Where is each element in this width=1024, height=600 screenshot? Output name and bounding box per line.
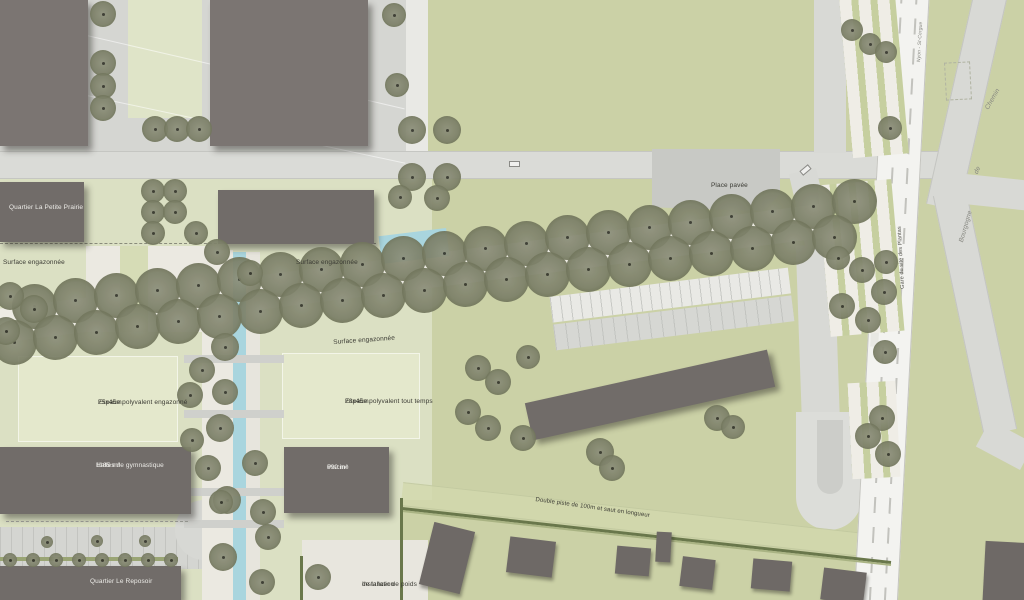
- label-text: Quartier Le Reposoir: [90, 577, 152, 587]
- building-halles-gymnastique: [0, 447, 191, 514]
- building-house: [982, 541, 1024, 600]
- tree-icon: [485, 369, 511, 395]
- building-house: [820, 567, 867, 600]
- tree-icon: [156, 299, 201, 344]
- car-icon: [509, 161, 520, 167]
- tree-icon: [72, 553, 86, 567]
- tree-icon: [849, 257, 875, 283]
- tree-icon: [443, 262, 488, 307]
- building-northwest-2: [210, 0, 368, 146]
- label-text: Surface engazonnée: [3, 258, 65, 268]
- tree-icon: [141, 553, 155, 567]
- tree-icon: [164, 553, 178, 567]
- tree-icon: [875, 441, 901, 467]
- tree-icon: [49, 553, 63, 567]
- tree-icon: [91, 535, 103, 547]
- site-plan-map: Place pavée Surface engazonnée Surface e…: [0, 0, 1024, 600]
- tree-icon: [361, 273, 406, 318]
- tree-icon: [607, 242, 652, 287]
- tree-icon: [875, 41, 897, 63]
- tree-icon: [398, 116, 426, 144]
- label-text: Place pavée: [711, 181, 748, 191]
- label-text: 690 m²: [327, 463, 348, 473]
- building-piscine: [284, 447, 389, 513]
- tree-icon: [771, 220, 816, 265]
- field-espace-tout-temps: [282, 353, 420, 439]
- tree-icon: [90, 1, 116, 27]
- building-house: [655, 532, 672, 563]
- tree-icon: [180, 428, 204, 452]
- tree-icon: [255, 524, 281, 550]
- tree-icon: [874, 250, 898, 274]
- tree-icon: [382, 3, 406, 27]
- tree-icon: [648, 236, 693, 281]
- tree-icon: [26, 553, 40, 567]
- tree-icon: [249, 569, 275, 595]
- tree-icon: [320, 278, 365, 323]
- parcel-outline: [944, 61, 972, 100]
- tree-icon: [242, 450, 268, 476]
- tree-icon: [206, 414, 234, 442]
- tree-icon: [189, 357, 215, 383]
- tree-icon: [873, 340, 897, 364]
- footbridge: [184, 410, 284, 418]
- tree-icon: [163, 200, 187, 224]
- tree-icon: [475, 415, 501, 441]
- tree-icon: [516, 345, 540, 369]
- label-text: Surface engazonnée: [296, 258, 358, 268]
- tree-icon: [829, 293, 855, 319]
- tree-icon: [484, 257, 529, 302]
- tree-icon: [95, 553, 109, 567]
- tree-icon: [305, 564, 331, 590]
- tree-icon: [118, 553, 132, 567]
- tree-icon: [826, 246, 850, 270]
- tree-icon: [525, 252, 570, 297]
- tree-icon: [424, 185, 450, 211]
- tree-icon: [237, 260, 263, 286]
- tree-icon: [279, 283, 324, 328]
- road-bourgogne-lower: [933, 189, 1017, 436]
- tree-icon: [238, 289, 283, 334]
- tree-icon: [433, 116, 461, 144]
- tree-icon: [41, 536, 53, 548]
- tree-icon: [141, 221, 165, 245]
- tree-icon: [139, 535, 151, 547]
- tree-icon: [211, 333, 239, 361]
- building-house: [750, 558, 791, 591]
- tree-icon: [74, 310, 119, 355]
- tree-icon: [197, 294, 242, 339]
- hedge-line-installation: [300, 556, 303, 600]
- tree-icon: [871, 279, 897, 305]
- building-house: [506, 536, 556, 577]
- turnaround-island: [817, 420, 843, 494]
- building-house: [615, 546, 651, 577]
- tree-icon: [209, 543, 237, 571]
- label-text: 1185 m²: [96, 461, 120, 471]
- tree-icon: [212, 379, 238, 405]
- tree-icon: [599, 455, 625, 481]
- tree-icon: [250, 499, 276, 525]
- label-text: 28x45m.: [345, 397, 371, 407]
- tree-icon: [510, 425, 536, 451]
- dashed-path: [6, 521, 188, 522]
- tree-icon: [186, 116, 212, 142]
- tree-icon: [204, 239, 230, 265]
- tree-icon: [721, 415, 745, 439]
- tree-icon: [730, 226, 775, 271]
- tree-icon: [20, 295, 48, 323]
- tree-icon: [385, 73, 409, 97]
- building-northwest-1: [0, 0, 88, 146]
- building-campus-north: [218, 190, 374, 244]
- building-house: [679, 556, 715, 590]
- tree-icon: [402, 268, 447, 313]
- tree-icon: [878, 116, 902, 140]
- tree-icon: [184, 221, 208, 245]
- tree-icon: [195, 455, 221, 481]
- tree-icon: [566, 247, 611, 292]
- tree-icon: [388, 185, 412, 209]
- tree-icon: [90, 95, 116, 121]
- label-text: 25x45m.: [98, 398, 124, 408]
- label-text: Quartier La Petite Prairie: [9, 203, 83, 213]
- tree-icon: [115, 304, 160, 349]
- tree-icon: [3, 553, 17, 567]
- tree-icon: [689, 231, 734, 276]
- tree-icon: [855, 307, 881, 333]
- tree-icon: [209, 490, 233, 514]
- label-text: de lancer de poids: [362, 580, 417, 590]
